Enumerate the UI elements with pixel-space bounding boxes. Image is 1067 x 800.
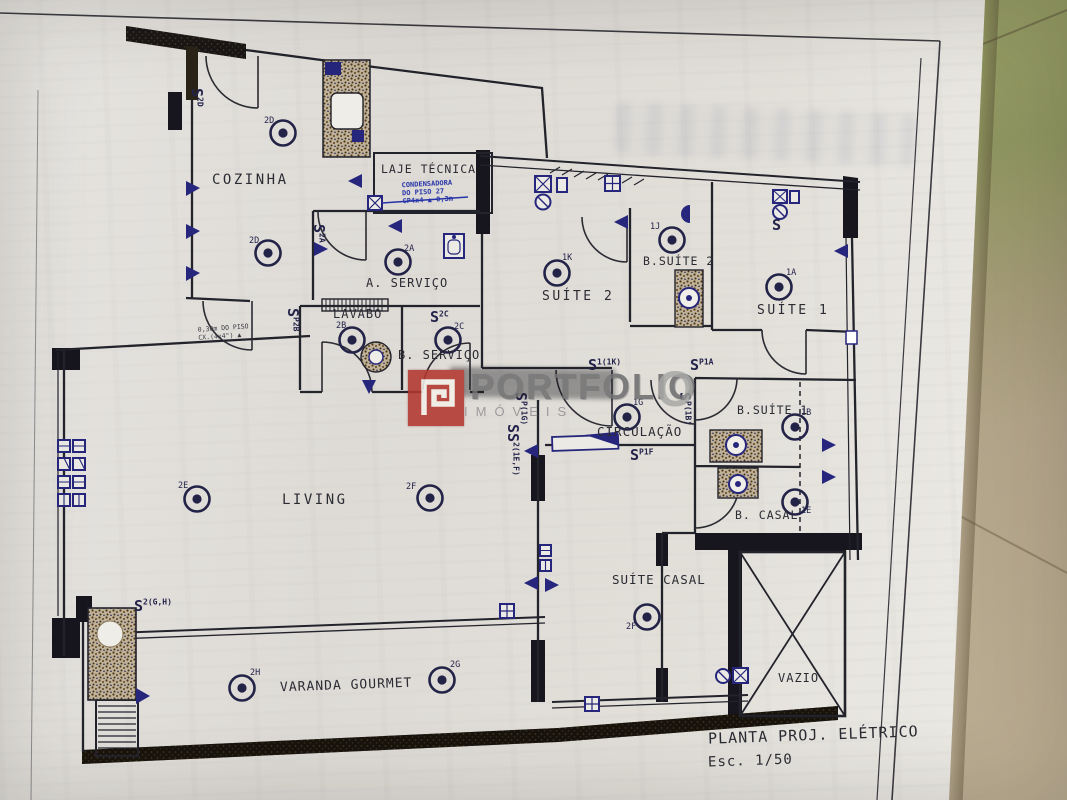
window-marker bbox=[846, 331, 857, 344]
room-label-living: LIVING bbox=[282, 492, 348, 508]
room-label-b-suite-1: B.SUÍTE 1 bbox=[737, 403, 808, 417]
switch-icon: S bbox=[772, 216, 781, 234]
switch-icon: S2C bbox=[430, 308, 449, 326]
light-label: 2D bbox=[249, 236, 259, 246]
room-label-b-suite-2: B.SUÍTE 2 bbox=[643, 254, 714, 268]
light-label: 1J bbox=[650, 222, 660, 232]
switch-icon: SP2B bbox=[284, 308, 302, 331]
watermark: PORTFOLIO O IMÓVEIS bbox=[398, 362, 728, 432]
room-label-suite-1: SUÍTE 1 bbox=[757, 303, 829, 318]
condensadora-note: CONDENSADORA DO PISO 27 CP4x4 ▲ 0,3m bbox=[401, 179, 453, 206]
light-label: 2G bbox=[450, 660, 460, 670]
light-label: 1K bbox=[562, 253, 572, 263]
light-label: 2A bbox=[404, 244, 414, 254]
light-label: 2D bbox=[264, 116, 274, 126]
drawing-sheet: COZINHA LAJE TÉCNICA A. SERVIÇO LAVABO B… bbox=[0, 0, 1067, 800]
photo-of-floor-plan: COZINHA LAJE TÉCNICA A. SERVIÇO LAVABO B… bbox=[0, 0, 1067, 800]
room-label-suite-2: SUÍTE 2 bbox=[542, 289, 614, 304]
phone-box-icon bbox=[790, 191, 799, 203]
light-label: 2F bbox=[406, 482, 416, 492]
room-label-vazio: VAZIO bbox=[778, 671, 819, 685]
switch-icon: S2A bbox=[310, 224, 328, 243]
kitchen-sink bbox=[331, 93, 363, 129]
portfolio-logo-icon bbox=[408, 370, 464, 426]
light-label: 2E bbox=[178, 481, 188, 491]
light-label: 2C bbox=[454, 322, 464, 332]
room-label-a-servico: A. SERVIÇO bbox=[366, 276, 448, 290]
switch-icon: SP1F bbox=[630, 446, 653, 464]
plan-scale: Esc. 1/50 bbox=[708, 752, 793, 771]
room-label-cozinha: COZINHA bbox=[212, 172, 289, 188]
table-seam-line bbox=[960, 515, 1067, 582]
room-label-suite-casal: SUÍTE CASAL bbox=[612, 572, 706, 587]
vazio-shaft bbox=[740, 552, 845, 716]
light-label: 1E bbox=[801, 506, 811, 516]
room-label-laje-tecnica: LAJE TÉCNICA bbox=[381, 162, 476, 176]
switch-icon: S2(G,H) bbox=[134, 596, 172, 615]
light-label: 2F bbox=[626, 622, 636, 632]
room-label-b-casal: B. CASAL bbox=[735, 508, 798, 522]
watermark-subtitle: IMÓVEIS bbox=[464, 404, 574, 419]
watermark-big-o: O bbox=[656, 360, 695, 418]
light-label: 2H bbox=[250, 668, 260, 678]
room-label-b-servico: B. SERVIÇO bbox=[398, 348, 480, 362]
light-label: 1B bbox=[801, 408, 811, 418]
planter-stone bbox=[97, 621, 123, 647]
switch-icon: S2D bbox=[188, 88, 206, 107]
room-label-lavabo: LAVABO bbox=[333, 307, 382, 321]
light-label: 1A bbox=[786, 268, 796, 278]
door-stop-icon bbox=[681, 205, 690, 223]
phone-box-icon bbox=[557, 178, 567, 192]
light-label: 2B bbox=[336, 321, 346, 331]
